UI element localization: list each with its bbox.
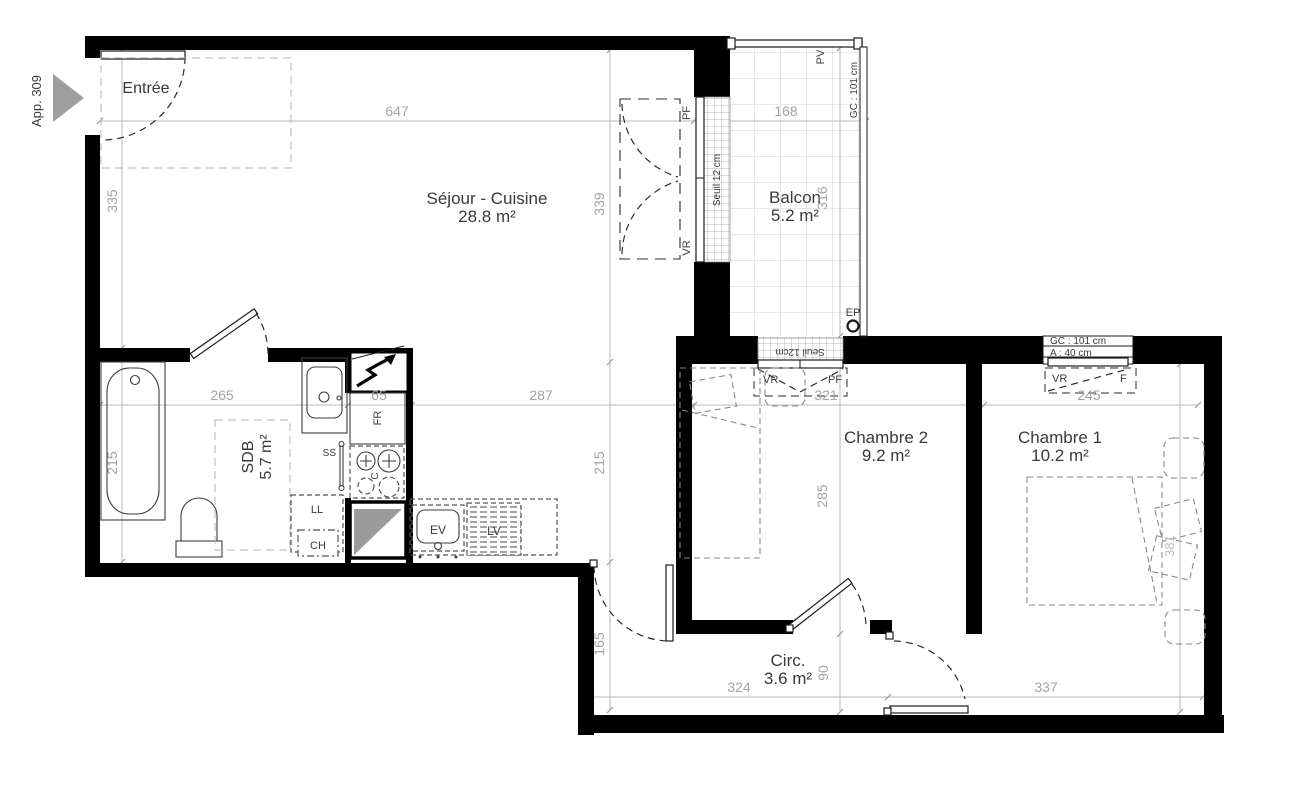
dimension-ticks	[97, 45, 1206, 715]
room-area-sejour: 28.8 m²	[458, 207, 516, 226]
annotation-f-chambre1: F	[1120, 373, 1127, 385]
dim-sejour-height: 339	[591, 192, 607, 216]
towel-dryer	[339, 442, 344, 491]
annotation-vr-chambre1: VR	[1052, 373, 1067, 385]
dim-chambre2-height: 285	[814, 484, 830, 508]
annotation-sink: EV	[430, 523, 446, 537]
dimension-lines	[97, 45, 1206, 715]
dim-circ-height: 165	[591, 632, 607, 656]
sdb-clearance-zone	[215, 420, 290, 550]
room-area-circ: 3.6 m²	[764, 669, 813, 688]
walls	[85, 36, 1224, 735]
room-area-chambre2: 9.2 m²	[862, 446, 911, 465]
washbasin	[302, 358, 347, 433]
apartment-entry-arrow	[53, 74, 84, 122]
dim-sejour-top-width: 647	[385, 103, 409, 119]
annotation-pf-sejour: PF	[681, 106, 693, 120]
annotation-dishwasher: LV	[487, 524, 501, 538]
annotation-seuil-sejour: Seuil 12 cm	[712, 154, 723, 206]
dim-entree-height: 335	[104, 189, 120, 213]
rainwater-pipe	[848, 321, 859, 332]
dim-chambre2-door: 90	[815, 665, 831, 681]
dim-kitchen-width: 65	[371, 387, 387, 403]
bathtub	[101, 362, 165, 520]
annotation-cooktop: C	[370, 472, 381, 479]
apartment-number-label: App. 309	[29, 75, 44, 127]
annotation-water-heater: CH	[310, 540, 326, 552]
sdb-door	[190, 309, 268, 359]
electrical-panel	[350, 346, 408, 392]
dim-sdb-height: 215	[104, 451, 120, 475]
annotation-vr-chambre2: VR	[763, 374, 778, 386]
annotation-pf-chambre2: PF	[828, 374, 842, 386]
dim-circ-width: 324	[727, 679, 751, 695]
floor-plan-drawing: Entrée Séjour - Cuisine 28.8 m² Balcon 5…	[0, 0, 1294, 800]
room-label-entree: Entrée	[122, 80, 169, 97]
technical-shaft	[350, 502, 406, 558]
cooktop	[350, 446, 404, 498]
annotation-gc-balcon: GC : 101 cm	[849, 62, 860, 118]
room-area-chambre1: 10.2 m²	[1031, 446, 1089, 465]
dim-sejour-lower-width: 287	[529, 387, 553, 403]
sejour-circ-door	[590, 560, 673, 641]
chambre1-nightstand-bottom	[1165, 610, 1205, 644]
room-label-circ: Circ.	[771, 651, 806, 670]
chambre1-door	[884, 632, 968, 715]
annotation-allege-chambre1: A : 40 cm	[1050, 348, 1092, 359]
dim-chambre1-lower-width: 337	[1034, 679, 1058, 695]
dim-chambre2-width: 321	[814, 387, 838, 403]
dim-balcon-height: 316	[814, 186, 830, 210]
dim-sdb-width: 265	[210, 387, 234, 403]
floor-plan-page: Entrée Séjour - Cuisine 28.8 m² Balcon 5…	[0, 0, 1294, 800]
room-label-sejour: Séjour - Cuisine	[427, 189, 548, 208]
annotation-washer: LL	[311, 504, 323, 516]
room-label-sdb: SDB	[240, 441, 257, 474]
annotation-seuil-chambre2: Seuil 12cm	[775, 346, 824, 357]
chambre1-nightstand-top	[1164, 438, 1204, 478]
entry-closet	[101, 58, 291, 168]
dim-sejour-lower-height: 215	[591, 451, 607, 475]
room-label-chambre1: Chambre 1	[1018, 428, 1102, 447]
room-area-balcon: 5.2 m²	[771, 206, 820, 225]
annotation-gc-chambre1: GC : 101 cm	[1050, 336, 1106, 347]
room-label-chambre2: Chambre 2	[844, 428, 928, 447]
annotation-towel-dryer: SS	[323, 448, 337, 459]
dim-chambre1-height: 381	[1162, 535, 1177, 557]
chambre2-door	[786, 578, 866, 632]
annotation-pv: PV	[815, 49, 827, 64]
room-area-sdb: 5.7 m²	[258, 434, 275, 480]
dim-balcon-width: 168	[774, 103, 798, 119]
annotation-vr-sejour: VR	[681, 240, 693, 255]
annotation-ep: EP	[846, 307, 861, 319]
dim-chambre1-width: 245	[1077, 387, 1101, 403]
annotation-fridge: FR	[372, 411, 384, 426]
